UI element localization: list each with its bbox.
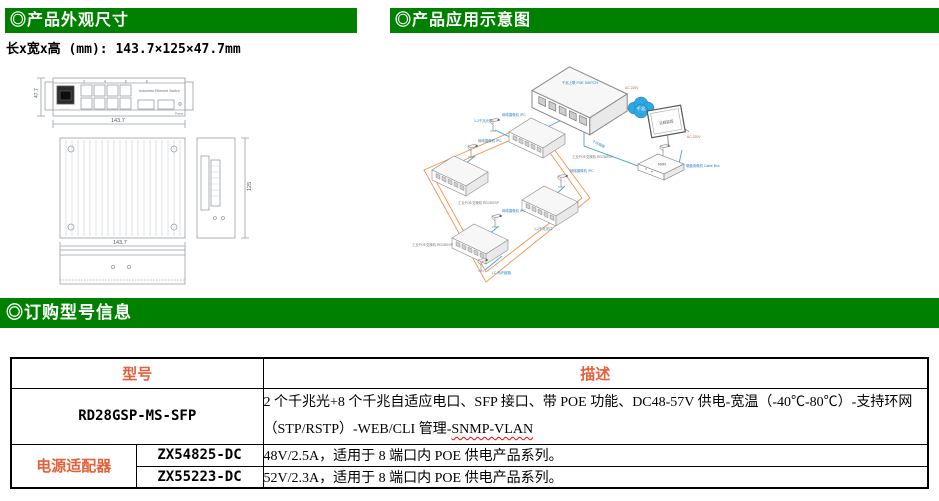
diagram-label-cam-2: 网络摄像机 IPC bbox=[478, 138, 502, 143]
description-adapter-1: 48V/2.5A，适用于 8 端口内 POE 供电产品系列。 bbox=[263, 444, 928, 466]
section-title-appearance: ◎产品外观尺寸 bbox=[5, 8, 357, 33]
mount-ear-left bbox=[45, 82, 53, 110]
side-view-body bbox=[197, 138, 235, 238]
cloud-label: 千兆 bbox=[637, 106, 646, 113]
diagram-label-ac-top: AC 220V bbox=[625, 86, 639, 90]
dim-height-front: 47.7 bbox=[34, 88, 40, 98]
table-row: 电源适配器 ZX54825-DC 48V/2.5A，适用于 8 端口内 POE … bbox=[11, 444, 928, 466]
ring-switch-3 bbox=[522, 186, 578, 226]
device-name-label: Industrial Ethernet Switch bbox=[139, 89, 180, 93]
model-adapter-1: ZX54825-DC bbox=[136, 444, 263, 466]
section-title-ordering: ◎订购型号信息 bbox=[0, 298, 939, 328]
diagram-label-fiber-1: 1-2千兆光口 bbox=[474, 118, 492, 123]
top-view-body bbox=[60, 138, 185, 238]
diagram-label-uplink: 千兆上联 POE SWITCH bbox=[562, 80, 599, 85]
column-header-model: 型号 bbox=[11, 358, 263, 388]
description-main: 2 个千兆光+8 个千兆自适应电口、SFP 接口、带 POE 功能、DC48-5… bbox=[263, 388, 928, 444]
application-diagram: 千兆 远程监控 NVR 千兆上联 POE SWITCH AC 220V AC 2… bbox=[394, 58, 939, 296]
ip-camera-3 bbox=[558, 174, 568, 187]
power-label: Power bbox=[175, 112, 184, 116]
ip-camera-4 bbox=[492, 214, 502, 227]
dim-length-front: 143.7 bbox=[111, 118, 125, 124]
sfp-slot-2 bbox=[158, 100, 174, 109]
dimensions-text: 长x宽x高 (mm): 143.7×125×47.7mm bbox=[6, 38, 241, 57]
uplink-switch bbox=[532, 67, 627, 135]
dim-length-top: 143.7 bbox=[113, 240, 127, 246]
adapter-group-label: 电源适配器 bbox=[11, 444, 136, 488]
ordering-table: 型号 描述 RD28GSP-MS-SFP 2 个千兆光+8 个千兆自适应电口、S… bbox=[10, 357, 929, 489]
diagram-label-switch-1: 工业POE交换机 RD28GSP bbox=[572, 154, 614, 159]
diagram-label-cablebox: 硬盘录像机 Cable Box bbox=[686, 163, 720, 168]
model-main: RD28GSP-MS-SFP bbox=[11, 388, 263, 444]
monitor: 远程监控 bbox=[647, 105, 687, 149]
section-title-application: ◎产品应用示意图 bbox=[390, 8, 939, 33]
power-led bbox=[179, 103, 182, 106]
mount-ear-right bbox=[185, 82, 193, 110]
model-adapter-2: ZX55223-DC bbox=[136, 466, 263, 488]
diagram-label-fiber-3: LC 光纤链路 bbox=[492, 270, 511, 275]
column-header-description: 描述 bbox=[263, 358, 928, 388]
nvr-label: NVR bbox=[658, 163, 666, 167]
description-adapter-2: 52V/2.3A，适用于 8 端口内 POE 供电产品系列。 bbox=[263, 466, 928, 488]
din-rail-clip bbox=[201, 156, 209, 210]
description-line-2: （STP/RSTP）-WEB/CLI 管理-SNMP-VLAN bbox=[264, 416, 927, 443]
dimension-drawing: 2 4 6 8 Industrial Ethernet Switch Conso… bbox=[5, 60, 385, 295]
datasheet-page: ◎产品外观尺寸 ◎产品应用示意图 长x宽x高 (mm): 143.7×125×4… bbox=[0, 0, 939, 501]
diagram-label-cam-1: 网络摄像机 IPC bbox=[502, 112, 526, 117]
diagram-label-cam-4: 网络摄像机 IPC bbox=[502, 208, 526, 213]
diagram-label-switch-3: 工业POE交换机 RD28GSP bbox=[412, 242, 454, 247]
console-label: Console bbox=[59, 106, 70, 110]
diagram-label-fiber-2: 1-2千兆光口 bbox=[534, 226, 552, 231]
dim-width-side: 125 bbox=[247, 182, 253, 191]
diagram-label-cam-3: 网络摄像机 IPC bbox=[570, 168, 594, 173]
diagram-label-ac-monitor: AC 220V bbox=[687, 135, 701, 139]
spellcheck-underline: SNMP-VLAN bbox=[451, 422, 533, 437]
table-row: ZX55223-DC 52V/2.3A，适用于 8 端口内 POE 供电产品系列… bbox=[11, 466, 928, 488]
description-line-1: 2 个千兆光+8 个千兆自适应电口、SFP 接口、带 POE 功能、DC48-5… bbox=[264, 389, 927, 416]
diagram-label-gig-link: 千兆链路 bbox=[592, 138, 607, 149]
port-numbers-label: 2 4 6 8 bbox=[83, 80, 157, 84]
rj45-ports bbox=[81, 85, 131, 109]
table-row: RD28GSP-MS-SFP 2 个千兆光+8 个千兆自适应电口、SFP 接口、… bbox=[11, 388, 928, 444]
nvr-box: NVR bbox=[638, 154, 684, 180]
sfp-slot-1 bbox=[138, 100, 154, 109]
diagram-label-switch-2: 工业POE交换机 RD28GSP bbox=[458, 200, 500, 205]
